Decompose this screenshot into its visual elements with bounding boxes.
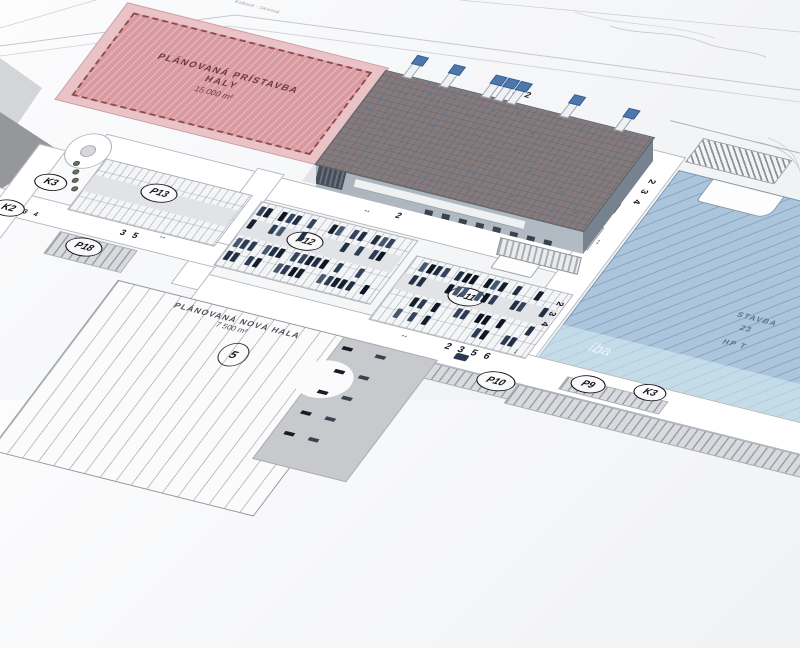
road-name-label: Kolková - Okresná	[234, 0, 281, 14]
tree-icon	[71, 169, 80, 175]
site-plan-render: { "map": { "road_name_top": "Kolková - O…	[0, 0, 800, 400]
tree-icon	[70, 186, 79, 192]
tree-icon	[71, 177, 80, 183]
